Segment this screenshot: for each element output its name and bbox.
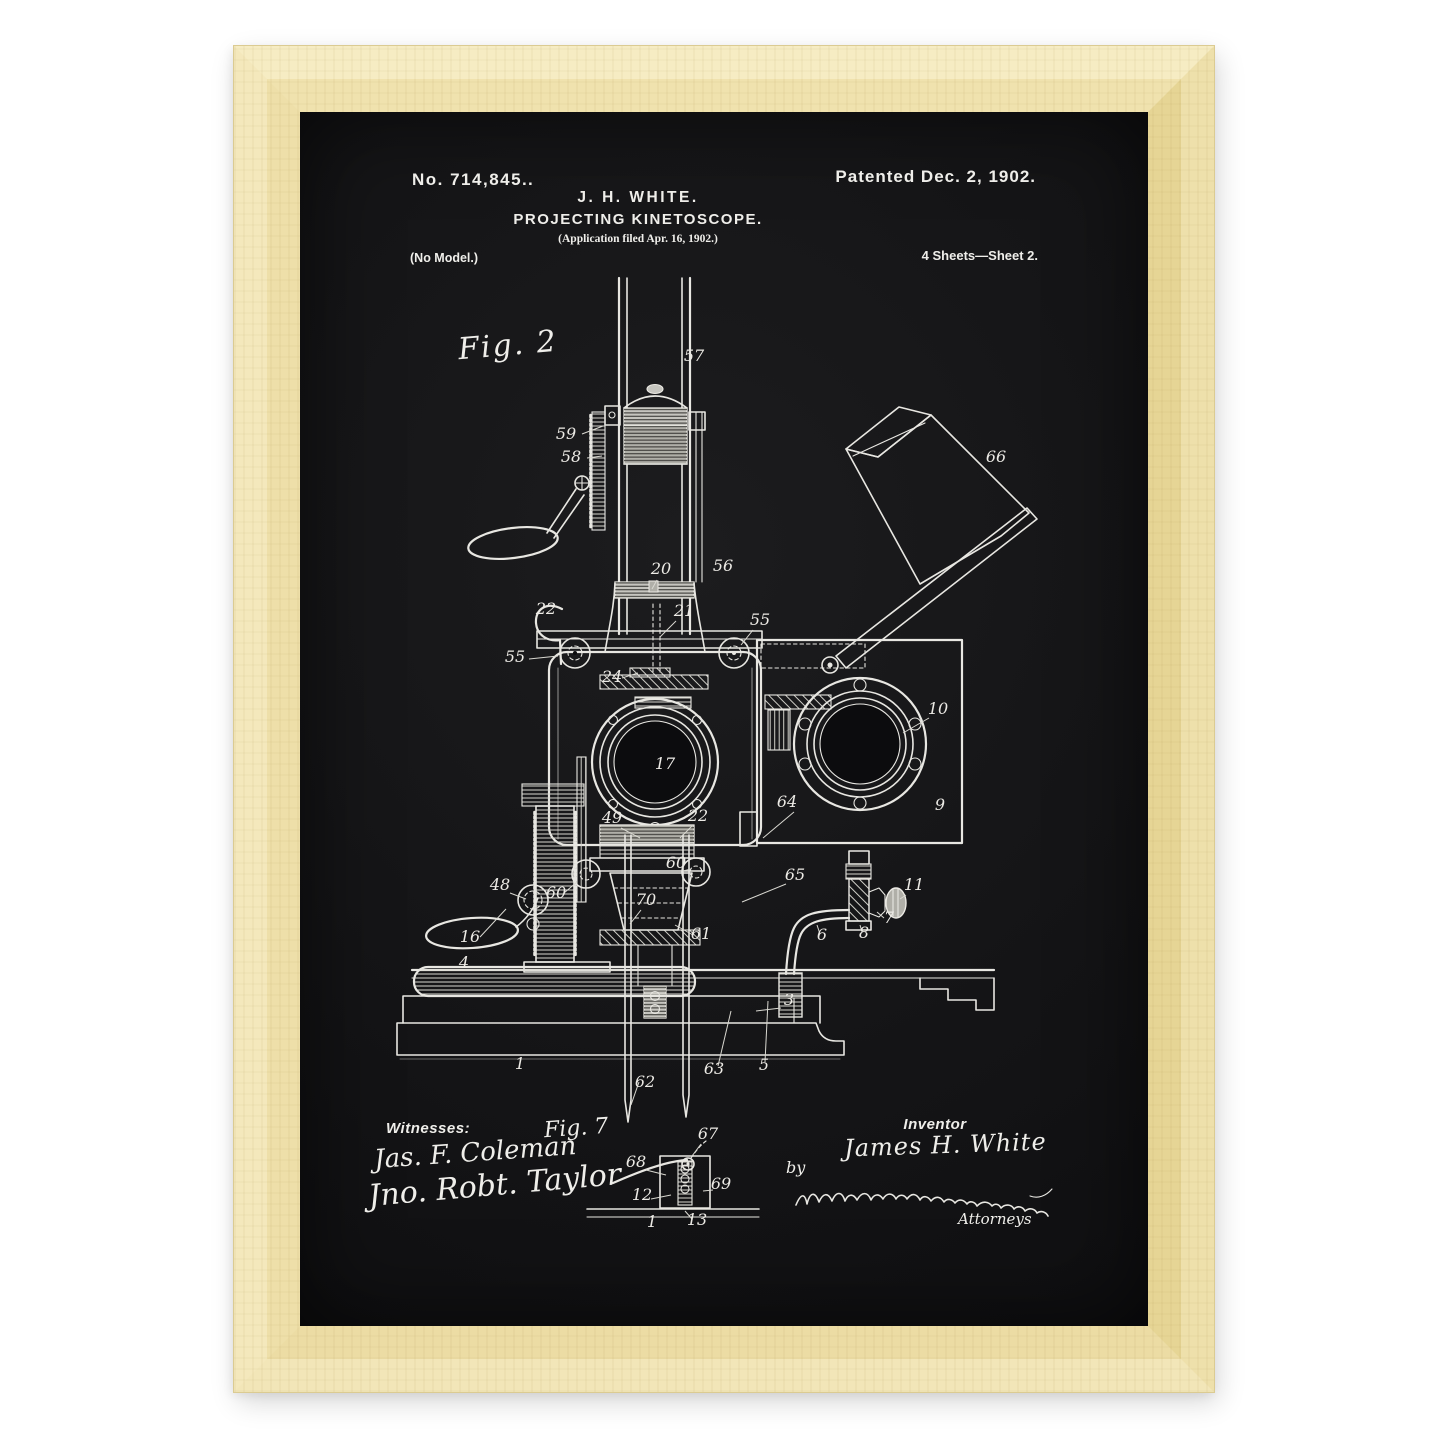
- part-label: 66: [986, 447, 1006, 466]
- part-label: 11: [904, 875, 924, 894]
- part-label: 13: [687, 1210, 707, 1229]
- part-label: 65: [785, 865, 805, 884]
- part-label: 24: [601, 667, 622, 686]
- picture-frame: 5759582220562155556624171096449224860601…: [234, 46, 1214, 1392]
- part-label: 62: [635, 1072, 655, 1091]
- part-label: 56: [713, 556, 733, 575]
- patent-date: Patented Dec. 2, 1902.: [835, 167, 1036, 187]
- lamp-box: [740, 640, 962, 846]
- part-label-leader: [646, 1170, 666, 1175]
- part-label: 55: [505, 647, 525, 666]
- part-label: 67: [698, 1124, 719, 1143]
- upper-crank-handle: [467, 523, 560, 564]
- part-label: 12: [632, 1185, 652, 1204]
- part-label: 57: [684, 346, 705, 365]
- film-chute: [836, 407, 1037, 668]
- attorneys-label: Attorneys: [958, 1210, 1032, 1228]
- part-label: 3: [784, 990, 794, 1009]
- base-platform: [397, 967, 994, 1059]
- part-label: 58: [561, 447, 581, 466]
- part-label: 8: [859, 923, 869, 942]
- sheet-number: 4 Sheets—Sheet 2.: [922, 248, 1038, 263]
- inventor-header-line: J. H. WHITE.: [300, 189, 976, 207]
- part-label: 64: [777, 792, 797, 811]
- part-label: 16: [460, 927, 480, 946]
- application-line: (Application filed Apr. 16, 1902.): [300, 233, 976, 245]
- part-label: 68: [626, 1152, 646, 1171]
- part-label: 9: [935, 795, 945, 814]
- part-label-leader: [756, 1008, 781, 1011]
- part-label: 60: [546, 883, 566, 902]
- part-label-leader: [763, 812, 794, 838]
- part-label: 1: [515, 1054, 525, 1073]
- part-label-leader: [718, 1011, 731, 1066]
- patent-title: PROJECTING KINETOSCOPE.: [300, 211, 976, 228]
- part-label: 70: [636, 890, 656, 909]
- part-label: 5: [759, 1055, 769, 1074]
- part-label-leader: [692, 1144, 701, 1156]
- part-label: 49: [601, 808, 622, 827]
- part-label: 63: [704, 1059, 724, 1078]
- part-label: 22: [535, 599, 556, 618]
- by-label: by: [786, 1158, 805, 1177]
- part-label: 1: [647, 1212, 657, 1231]
- part-label-leader: [741, 630, 753, 645]
- part-label: 17: [655, 754, 676, 773]
- patent-poster: 5759582220562155556624171096449224860601…: [300, 112, 1148, 1326]
- part-label: 69: [711, 1174, 731, 1193]
- witnesses-heading: Witnesses:: [386, 1120, 470, 1137]
- patent-number: No. 714,845.: [412, 170, 528, 190]
- part-label: 55: [750, 610, 770, 629]
- part-label-leader: [742, 884, 786, 902]
- lower-crank-handle: [425, 898, 538, 951]
- part-label: 22: [687, 806, 708, 825]
- part-label-leader: [651, 1195, 671, 1199]
- part-label: 60: [666, 853, 686, 872]
- part-label: 7: [884, 908, 895, 927]
- patent-number-period: .: [528, 170, 533, 190]
- no-model-note: (No Model.): [410, 251, 478, 265]
- part-label-leader: [480, 909, 506, 937]
- part-label: 48: [489, 875, 510, 894]
- part-label: 61: [691, 924, 711, 943]
- part-label: 6: [817, 925, 827, 944]
- part-label: 10: [928, 699, 948, 718]
- part-label: 20: [650, 559, 671, 578]
- product-photo: 5759582220562155556624171096449224860601…: [0, 0, 1445, 1445]
- part-label: 59: [556, 424, 576, 443]
- part-label: 4: [458, 953, 469, 972]
- part-label: 21: [673, 601, 694, 620]
- part-label-leader: [660, 621, 676, 637]
- film-spool: [624, 385, 687, 465]
